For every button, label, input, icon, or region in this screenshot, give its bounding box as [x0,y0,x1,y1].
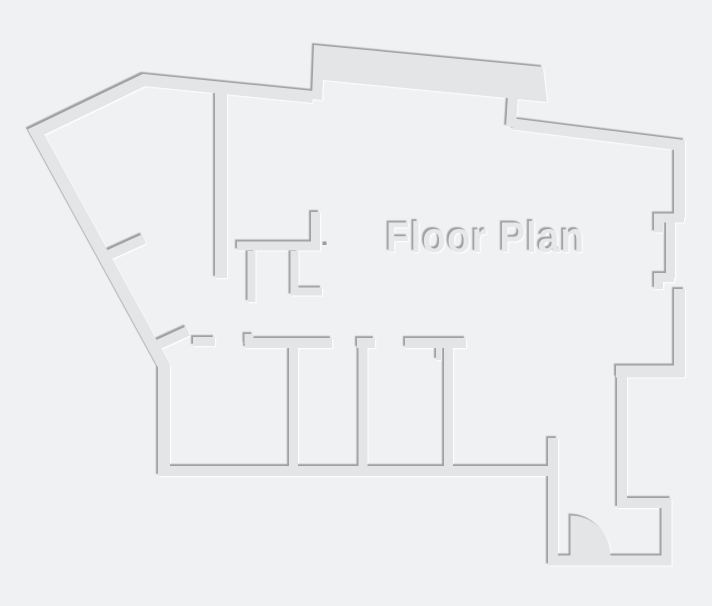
floor-plan-background [0,0,712,606]
wall-slab-connector [511,95,513,127]
wall-mark-dot [323,242,327,246]
mark-layer [323,242,327,246]
floor-plan-page: Floor Plan [0,0,712,606]
floor-plan-title: Floor Plan [386,214,585,262]
floor-plan-canvas: Floor Plan [0,0,712,606]
